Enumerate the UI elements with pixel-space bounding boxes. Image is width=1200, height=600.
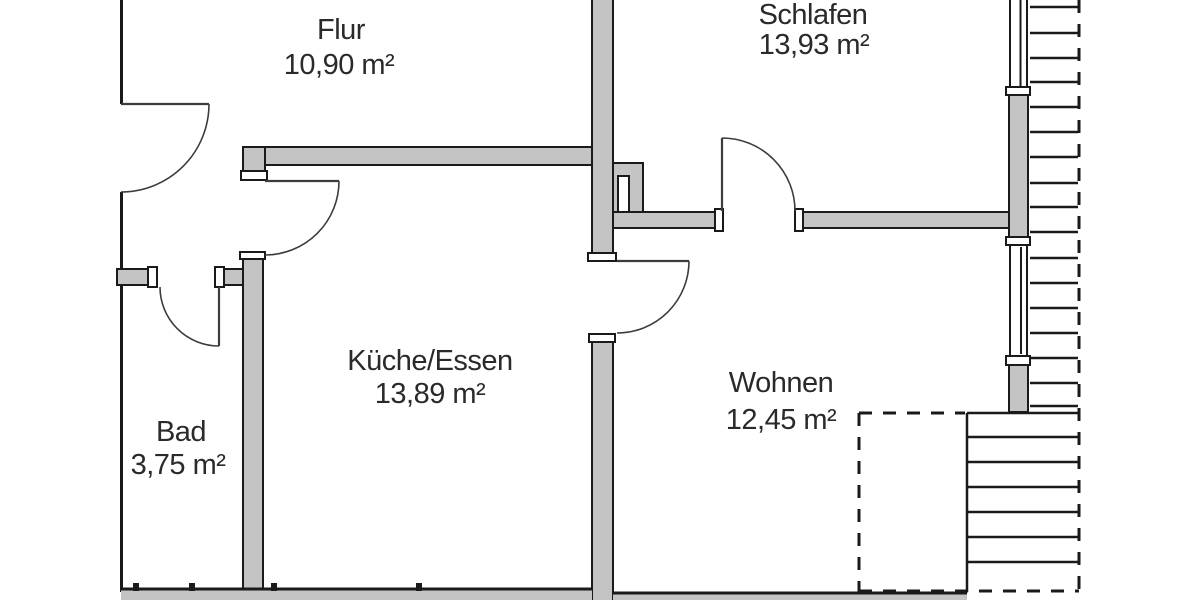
wall-bad-kueche: [243, 258, 263, 600]
jamb-bad-right: [215, 267, 224, 287]
window-schlafen: [1010, 0, 1027, 87]
jamb-kueche-wohnen: [589, 334, 615, 342]
room-label-bad: Bad: [156, 416, 206, 448]
jamb-schlafen-right: [795, 209, 803, 231]
jamb-bad-left: [148, 267, 157, 287]
stair-treads-upper: [1030, 7, 1078, 406]
bad-door-arc: [160, 287, 219, 346]
wall-right-upper-pier: [1009, 95, 1028, 240]
wall-right-lower-pier: [1009, 364, 1028, 412]
wall-flur-stub: [243, 147, 265, 173]
wall-bad-north-right: [224, 269, 243, 285]
room-label-schlafen: Schlafen: [759, 0, 868, 31]
window-wohnen: [1010, 245, 1027, 356]
room-area-wohnen: 12,45 m²: [726, 404, 837, 436]
wall-bad-north-left: [117, 269, 151, 285]
jamb-window-mid-upper: [1006, 237, 1030, 245]
room-area-schlafen: 13,93 m²: [759, 29, 870, 61]
wall-schlafen-wohnen-right: [803, 212, 1009, 228]
floor-plan: Flur 10,90 m² Schlafen 13,93 m² Küche/Es…: [0, 0, 1200, 600]
room-area-bad: 3,75 m²: [131, 449, 227, 481]
entrance-door-arc: [121, 104, 209, 192]
terrace-outline: [859, 0, 1079, 592]
jamb-window-top: [1006, 87, 1030, 95]
jamb-bad-wall-top: [240, 252, 265, 259]
room-label-kueche: Küche/Essen: [347, 345, 512, 377]
stair-treads-lower: [967, 437, 1078, 562]
kueche-door-arc: [265, 181, 339, 255]
schlafen-door-arc: [722, 138, 795, 211]
room-area-flur: 10,90 m²: [284, 49, 395, 81]
room-labels: Flur 10,90 m² Schlafen 13,93 m² Küche/Es…: [131, 0, 870, 481]
jamb-hall-south: [588, 253, 616, 261]
wall-bottom-left-fill: [121, 590, 592, 600]
jamb-flur-stub: [241, 171, 267, 180]
walls: [117, 0, 1028, 600]
wohnen-door-arc: [617, 261, 689, 333]
room-label-wohnen: Wohnen: [729, 367, 834, 399]
jamb-window-mid-lower: [1006, 356, 1030, 365]
wall-flur-schlafen: [592, 0, 613, 256]
room-area-kueche: 13,89 m²: [375, 378, 486, 410]
wall-flur-kueche: [265, 147, 592, 165]
jamb-schlafen-left: [715, 209, 723, 231]
wall-kueche-wohnen: [592, 341, 613, 600]
wall-schlafen-wohnen-left: [613, 212, 717, 228]
wall-bottom-right-fill: [613, 594, 967, 600]
floor-plan-canvas: Flur 10,90 m² Schlafen 13,93 m² Küche/Es…: [0, 0, 1200, 600]
shaft-hole: [618, 176, 629, 212]
room-label-flur: Flur: [317, 14, 366, 46]
